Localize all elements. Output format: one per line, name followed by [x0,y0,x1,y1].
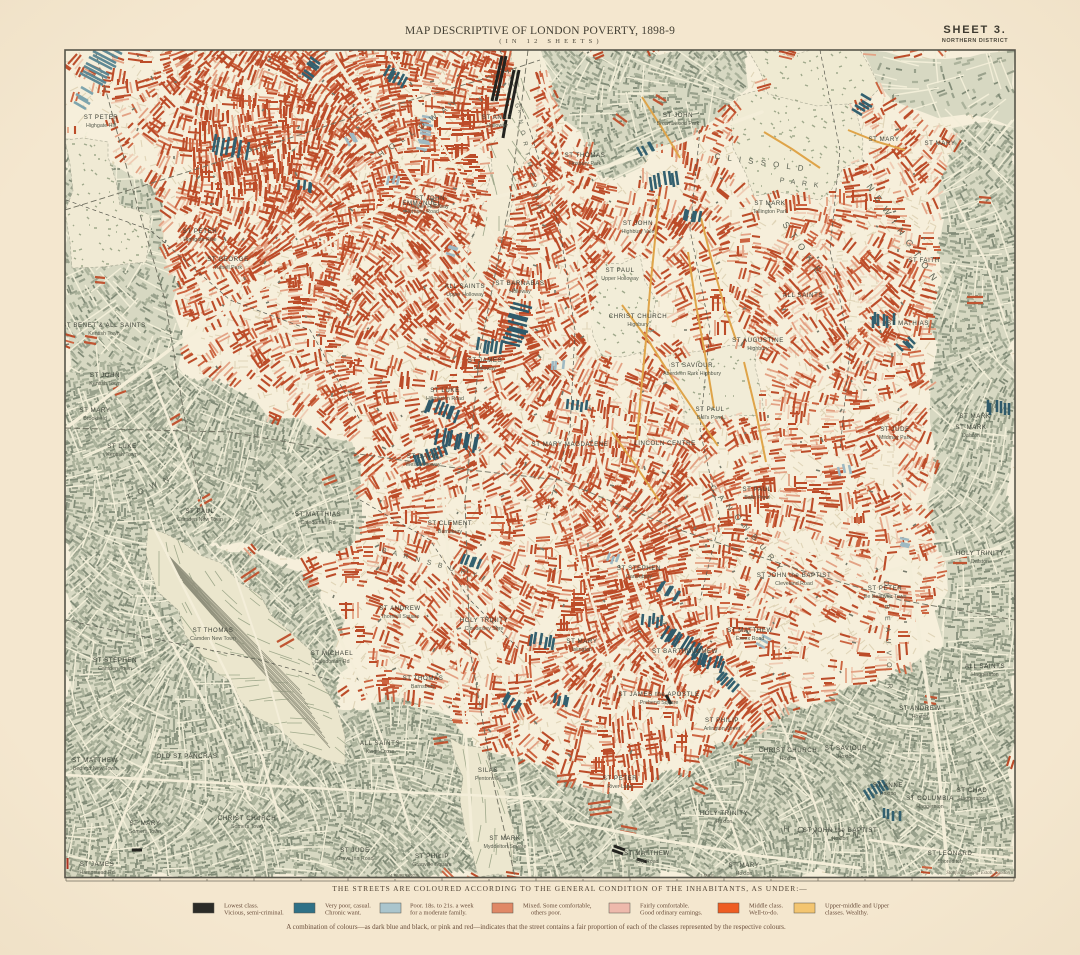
svg-text:THE STREETS ARE COLOURED A: THE STREETS ARE COLOURED ACCORDING TO TH… [332,884,807,893]
svg-text:1 MILE: 1 MILE [700,873,714,878]
svg-text:NORTHERN DISTRICT: NORTHERN DISTRICT [942,38,1008,44]
svg-text:MAP DESCRIPTIVE OF LONDON: MAP DESCRIPTIVE OF LONDON POVERTY, 1898-… [405,25,675,37]
svg-text:Stanford's Geoǧ. Estab̌. Lond: Stanford's Geoǧ. Estab̌. London [946,870,1010,876]
svg-text:(IN 12 SHEETS): (IN 12 SHEETS) [499,38,603,45]
svg-text:Poor. 18s. to 21s. a weekfor: Poor. 18s. to 21s. a weekfor a moderate … [410,903,474,917]
svg-text:4 FURLONGS: 4 FURLONGS [390,873,419,878]
svg-text:SHEET 3.: SHEET 3. [943,24,1006,36]
svg-text:A combination of colours—as da: A combination of colours—as dark blue an… [286,923,786,931]
